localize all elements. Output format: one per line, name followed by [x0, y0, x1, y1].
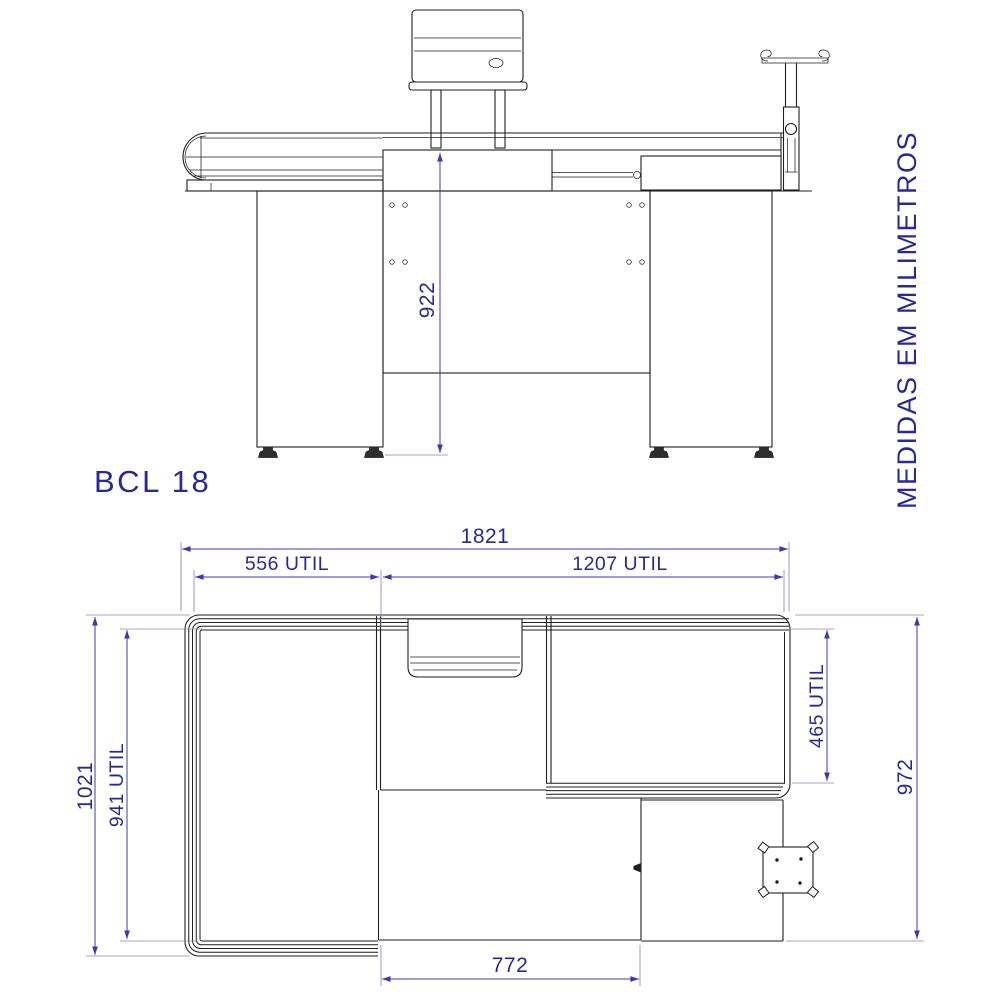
lower-middle-recess — [379, 790, 642, 940]
dim-left-useful-length: 556 UTIL — [195, 553, 379, 577]
conveyor-belt — [183, 133, 383, 191]
latch-nub — [634, 863, 642, 873]
left-cabinet — [257, 191, 383, 447]
plan-view: 1821 556 UTIL 1207 UTIL 1021 941 UTIL 46… — [74, 525, 924, 986]
dim-right-useful-depth-label: 465 UTIL — [806, 664, 828, 748]
bag-hook-right — [819, 50, 829, 61]
model-title: BCL 18 — [94, 464, 211, 499]
dim-left-useful-depth: 941 UTIL — [106, 630, 128, 939]
shelf-pin — [634, 172, 641, 179]
front-view: 922 BCL 18 — [94, 10, 829, 499]
technical-drawing-page: 922 BCL 18 MEDIDAS EM MILIMETROS — [0, 0, 1000, 1000]
bagging-shelf-box — [641, 156, 781, 190]
dim-front-height: 922 — [385, 153, 448, 455]
bag-hook-left — [761, 50, 771, 61]
dim-lower-recess-width-label: 772 — [492, 954, 529, 977]
dim-right-total-depth-label: 972 — [894, 759, 917, 796]
extension-lines — [86, 542, 924, 986]
pole-clamp-knob — [786, 124, 797, 135]
register-display — [409, 10, 527, 148]
register-plan — [408, 619, 522, 677]
dim-right-total-depth: 972 — [894, 617, 917, 939]
dim-total-length-label: 1821 — [461, 525, 510, 548]
monitor-mount-plate — [757, 841, 819, 898]
under-register-panel — [383, 150, 552, 191]
right-cabinet — [650, 191, 772, 447]
bagging-edge-rail — [546, 629, 790, 798]
dim-front-height-label: 922 — [416, 282, 439, 319]
dim-right-useful-length-label: 1207 UTIL — [572, 553, 668, 575]
dim-lower-recess-width: 772 — [382, 954, 639, 979]
leveling-feet — [259, 447, 774, 458]
dim-left-useful-length-label: 556 UTIL — [245, 553, 329, 575]
units-note: MEDIDAS EM MILIMETROS — [892, 131, 922, 509]
printer-shelf — [552, 172, 641, 179]
dim-right-useful-length: 1207 UTIL — [383, 553, 783, 577]
lower-right-cabinet — [634, 800, 784, 941]
dim-total-length: 1821 — [182, 525, 788, 549]
dim-left-useful-depth-label: 941 UTIL — [106, 743, 128, 827]
dim-total-depth-label: 1021 — [74, 762, 97, 811]
drawing-canvas: 922 BCL 18 MEDIDAS EM MILIMETROS — [0, 0, 1000, 1000]
dim-right-useful-depth: 465 UTIL — [806, 630, 828, 781]
dim-total-depth: 1021 — [74, 617, 97, 955]
